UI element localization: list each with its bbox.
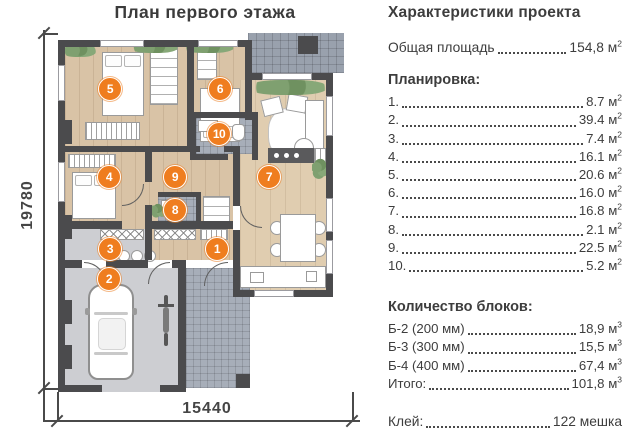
- glue-label: Клей:: [388, 413, 423, 431]
- dot-leader: [402, 234, 583, 236]
- burner: [284, 153, 289, 158]
- layout-list: 1. 8.7 м2 2. 39.4 м2 3. 7.4 м2 4: [388, 93, 622, 275]
- pillow: [75, 175, 92, 186]
- wall: [58, 385, 102, 392]
- room-marker-number: 4: [106, 170, 112, 184]
- wall: [158, 192, 201, 197]
- window: [58, 65, 65, 101]
- block-item-label: Б-4 (400 мм): [388, 357, 465, 375]
- wardrobe: [85, 122, 140, 140]
- layout-item-number: 5.: [388, 166, 399, 184]
- layout-item: 1. 8.7 м2: [388, 93, 622, 111]
- dot-leader: [402, 252, 576, 254]
- wall: [58, 146, 200, 152]
- blocks-section: Количество блоков: Б-2 (200 мм) 18,9 м3 …: [388, 299, 622, 393]
- dot-leader: [468, 370, 576, 372]
- block-item: Б-2 (200 мм) 18,9 м3: [388, 320, 622, 338]
- block-item-volume: 15,5 м3: [579, 338, 622, 356]
- layout-item-number: 1.: [388, 93, 399, 111]
- closet: [150, 47, 178, 105]
- layout-item-area: 7.4 м2: [586, 130, 622, 148]
- car: [88, 284, 134, 380]
- block-item: Б-4 (400 мм) 67,4 м3: [388, 357, 622, 375]
- room-marker: 4: [97, 165, 121, 189]
- blocks-total-label: Итого:: [388, 375, 426, 393]
- plant: [312, 154, 327, 181]
- dimension-height-label: 19780: [19, 179, 37, 231]
- garage-door-opening: [102, 385, 160, 392]
- layout-item-area: 5.2 м2: [586, 257, 622, 275]
- toilet: [232, 124, 245, 141]
- window: [254, 290, 294, 297]
- dot-leader: [402, 143, 583, 145]
- pilaster: [65, 300, 72, 324]
- layout-item-area: 16.1 м2: [579, 148, 622, 166]
- wall: [190, 154, 228, 160]
- pillow: [124, 55, 141, 67]
- extension-line: [44, 33, 58, 35]
- dot-leader: [402, 216, 576, 218]
- block-item-volume: 18,9 м3: [579, 320, 622, 338]
- extension-line: [352, 392, 354, 420]
- room-marker-number: 9: [172, 170, 178, 184]
- room-marker: 5: [98, 77, 122, 101]
- glue-row: Клей: 122 мешка: [388, 413, 622, 431]
- room-marker-number: 10: [213, 127, 225, 141]
- room-marker-number: 8: [172, 203, 178, 217]
- glue-value: 122 мешка: [553, 413, 622, 431]
- extension-line: [44, 388, 58, 390]
- dot-leader: [429, 388, 568, 390]
- page-title: План первого этажа: [38, 2, 372, 23]
- wall: [190, 112, 258, 118]
- blocks-list: Б-2 (200 мм) 18,9 м3 Б-3 (300 мм) 15,5 м…: [388, 320, 622, 375]
- dot-leader: [498, 52, 567, 54]
- dimension-line-vertical: [43, 30, 45, 422]
- total-area-value: 154,8 м2: [569, 39, 622, 57]
- dot-leader: [402, 106, 583, 108]
- floor-plan-page: План первого этажа: [0, 0, 632, 433]
- kitchen-sink: [250, 272, 264, 283]
- layout-item-number: 7.: [388, 202, 399, 220]
- wall: [58, 260, 82, 268]
- room-marker: 7: [257, 165, 281, 189]
- layout-item-area: 8.7 м2: [586, 93, 622, 111]
- total-area-row: Общая площадь 154,8 м2: [388, 39, 622, 57]
- wall: [145, 221, 233, 229]
- layout-item: 6. 16.0 м2: [388, 184, 622, 202]
- dot-leader: [402, 161, 576, 163]
- room-marker: 3: [98, 237, 122, 261]
- burner: [274, 153, 279, 158]
- layout-item: 5. 20.6 м2: [388, 166, 622, 184]
- window: [100, 40, 144, 47]
- room-marker: 2: [97, 267, 121, 291]
- wardrobe: [197, 50, 217, 80]
- pilaster: [65, 120, 72, 144]
- layout-item-area: 22.5 м2: [579, 239, 622, 257]
- wall: [233, 230, 240, 297]
- block-item: Б-3 (300 мм) 15,5 м3: [388, 338, 622, 356]
- door-arc: [204, 262, 228, 286]
- window: [198, 40, 238, 47]
- dot-leader: [409, 270, 583, 272]
- pilaster: [65, 345, 72, 369]
- dot-leader: [402, 179, 576, 181]
- layout-item-number: 6.: [388, 184, 399, 202]
- window: [326, 240, 333, 274]
- layout-item-number: 10.: [388, 257, 406, 275]
- extension-line: [57, 392, 59, 420]
- porch-column: [236, 374, 250, 388]
- layout-item-number: 2.: [388, 111, 399, 129]
- window: [262, 73, 312, 80]
- room-marker: 10: [207, 122, 231, 146]
- window: [326, 96, 333, 136]
- dot-leader: [402, 125, 576, 127]
- blocks-total-row: Итого: 101,8 м3: [388, 375, 622, 393]
- total-area-label: Общая площадь: [388, 39, 495, 57]
- room-marker-number: 5: [107, 82, 113, 96]
- layout-item: 4. 16.1 м2: [388, 148, 622, 166]
- layout-item-number: 8.: [388, 221, 399, 239]
- wall: [190, 112, 196, 160]
- dining-table: [280, 214, 316, 262]
- wall: [145, 152, 152, 182]
- layout-item: 8. 2.1 м2: [388, 221, 622, 239]
- burner: [294, 153, 299, 158]
- block-item-label: Б-2 (200 мм): [388, 320, 465, 338]
- layout-item-number: 9.: [388, 239, 399, 257]
- room-marker: 9: [163, 165, 187, 189]
- motorcycle: [158, 295, 174, 347]
- layout-heading: Планировка:: [388, 72, 622, 88]
- layout-item-area: 20.6 м2: [579, 166, 622, 184]
- room-marker: 8: [163, 198, 187, 222]
- specs-panel: Характеристики проекта Общая площадь 154…: [388, 4, 622, 431]
- room-marker-number: 3: [107, 242, 113, 256]
- room-marker-number: 7: [266, 170, 272, 184]
- panel-title: Характеристики проекта: [388, 4, 622, 22]
- terrace-floor: [248, 33, 344, 73]
- layout-item-number: 4.: [388, 148, 399, 166]
- wardrobe: [154, 229, 196, 240]
- dot-leader: [468, 333, 576, 335]
- pilaster: [65, 215, 72, 239]
- cooker: [306, 271, 317, 282]
- dot-leader: [402, 197, 576, 199]
- layout-item-area: 2.1 м2: [586, 221, 622, 239]
- door-arc: [148, 262, 170, 284]
- layout-item: 9. 22.5 м2: [388, 239, 622, 257]
- layout-item-area: 16.0 м2: [579, 184, 622, 202]
- pillow: [105, 55, 122, 67]
- plant: [250, 80, 326, 95]
- room-marker-number: 1: [214, 242, 220, 256]
- blocks-heading: Количество блоков:: [388, 299, 622, 315]
- dimension-width-label: 15440: [148, 400, 266, 418]
- window: [58, 162, 65, 202]
- block-item-volume: 67,4 м3: [579, 357, 622, 375]
- layout-item: 3. 7.4 м2: [388, 130, 622, 148]
- wall: [245, 40, 252, 120]
- layout-item-area: 16.8 м2: [579, 202, 622, 220]
- block-item-label: Б-3 (300 мм): [388, 338, 465, 356]
- dimension-line-horizontal: [43, 420, 360, 422]
- layout-item: 7. 16.8 м2: [388, 202, 622, 220]
- wall: [252, 112, 258, 160]
- dot-leader: [468, 352, 576, 354]
- layout-item-number: 3.: [388, 130, 399, 148]
- wall: [196, 192, 201, 226]
- blocks-total-value: 101,8 м3: [572, 375, 623, 393]
- layout-item-area: 39.4 м2: [579, 111, 622, 129]
- room-marker-number: 2: [106, 272, 112, 286]
- dot-leader: [426, 426, 550, 428]
- wall: [178, 260, 186, 392]
- layout-item: 2. 39.4 м2: [388, 111, 622, 129]
- room-marker: 1: [205, 237, 229, 261]
- room-marker-number: 6: [217, 82, 223, 96]
- wall: [145, 221, 152, 260]
- window: [326, 198, 333, 232]
- room-marker: 6: [208, 77, 232, 101]
- layout-item: 10. 5.2 м2: [388, 257, 622, 275]
- wall: [233, 146, 240, 206]
- terrace-column: [298, 36, 318, 54]
